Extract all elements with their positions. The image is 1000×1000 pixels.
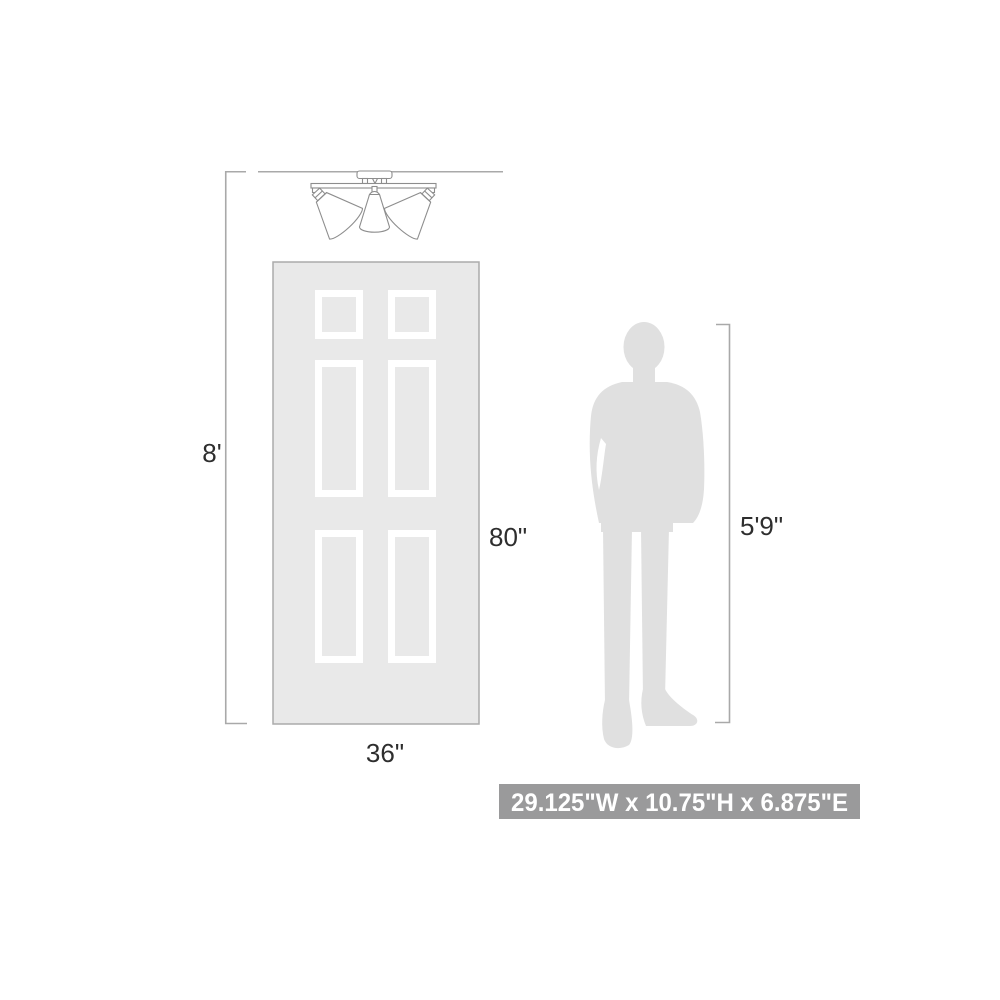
- door-panel: [388, 360, 436, 497]
- fixture-center-shade: [360, 195, 390, 233]
- door-width-label: 36": [366, 738, 404, 768]
- door: [273, 262, 479, 724]
- person-height-dimension-line: [715, 325, 730, 723]
- scale-diagram: 8': [0, 0, 1000, 1000]
- door-panel: [388, 530, 436, 663]
- ceiling-height-label: 8': [202, 438, 221, 468]
- door-slab: [273, 262, 479, 724]
- fixture-mount-right: [382, 179, 387, 184]
- fixture-canopy: [357, 171, 392, 179]
- diagram-canvas: 8': [0, 0, 1000, 1000]
- door-height-label: 80": [489, 522, 527, 552]
- door-panel: [388, 290, 436, 339]
- fixture-mount-left: [363, 179, 368, 184]
- product-dimensions-box: 29.125"W x 10.75"H x 6.875"E: [499, 784, 860, 819]
- person-height-label: 5'9": [740, 511, 783, 541]
- door-panel: [315, 530, 363, 663]
- light-fixture: [300, 171, 448, 243]
- door-panel: [315, 290, 363, 339]
- product-dimensions-label: 29.125"W x 10.75"H x 6.875"E: [511, 789, 848, 817]
- fixture-mount-center: [373, 179, 378, 184]
- ceiling-height-dimension-line: [226, 172, 247, 724]
- door-panel: [315, 360, 363, 497]
- person-silhouette: [590, 322, 705, 748]
